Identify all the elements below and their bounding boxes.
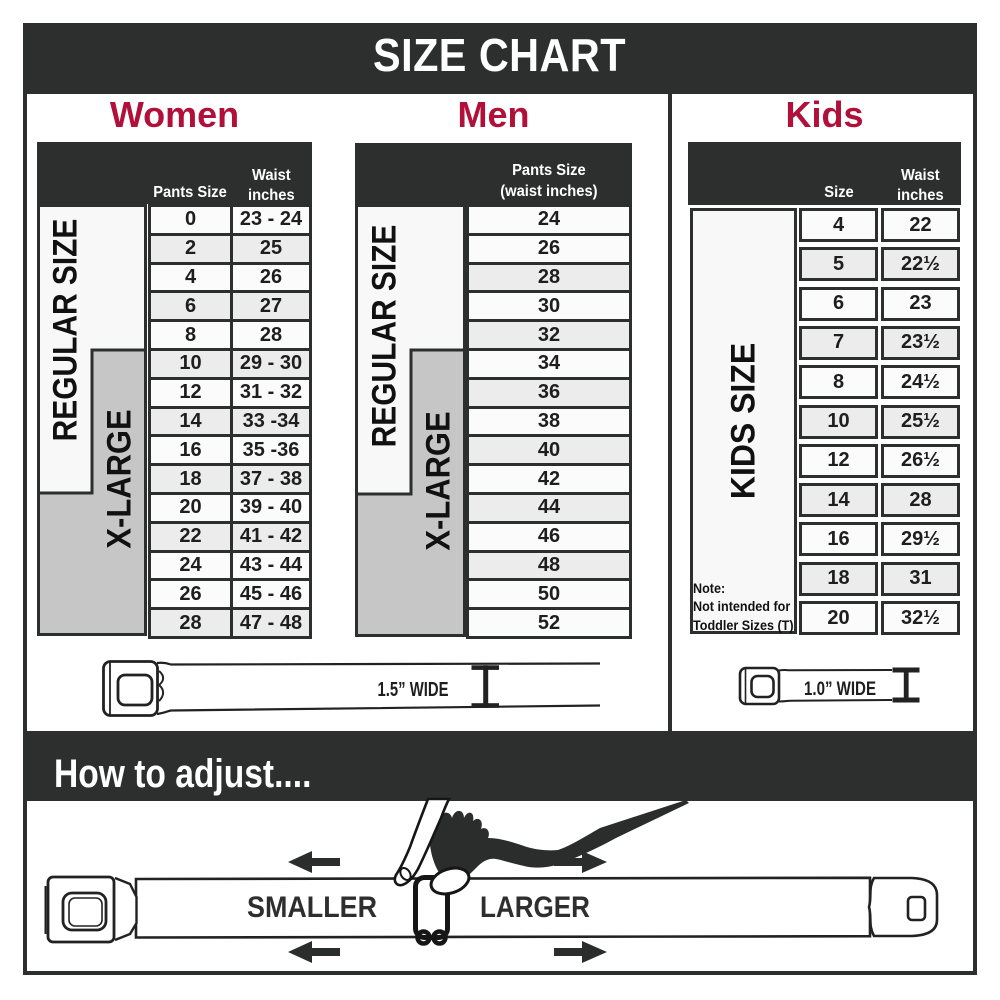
svg-text:SMALLER: SMALLER <box>247 891 377 924</box>
svg-text:LARGER: LARGER <box>480 891 590 924</box>
